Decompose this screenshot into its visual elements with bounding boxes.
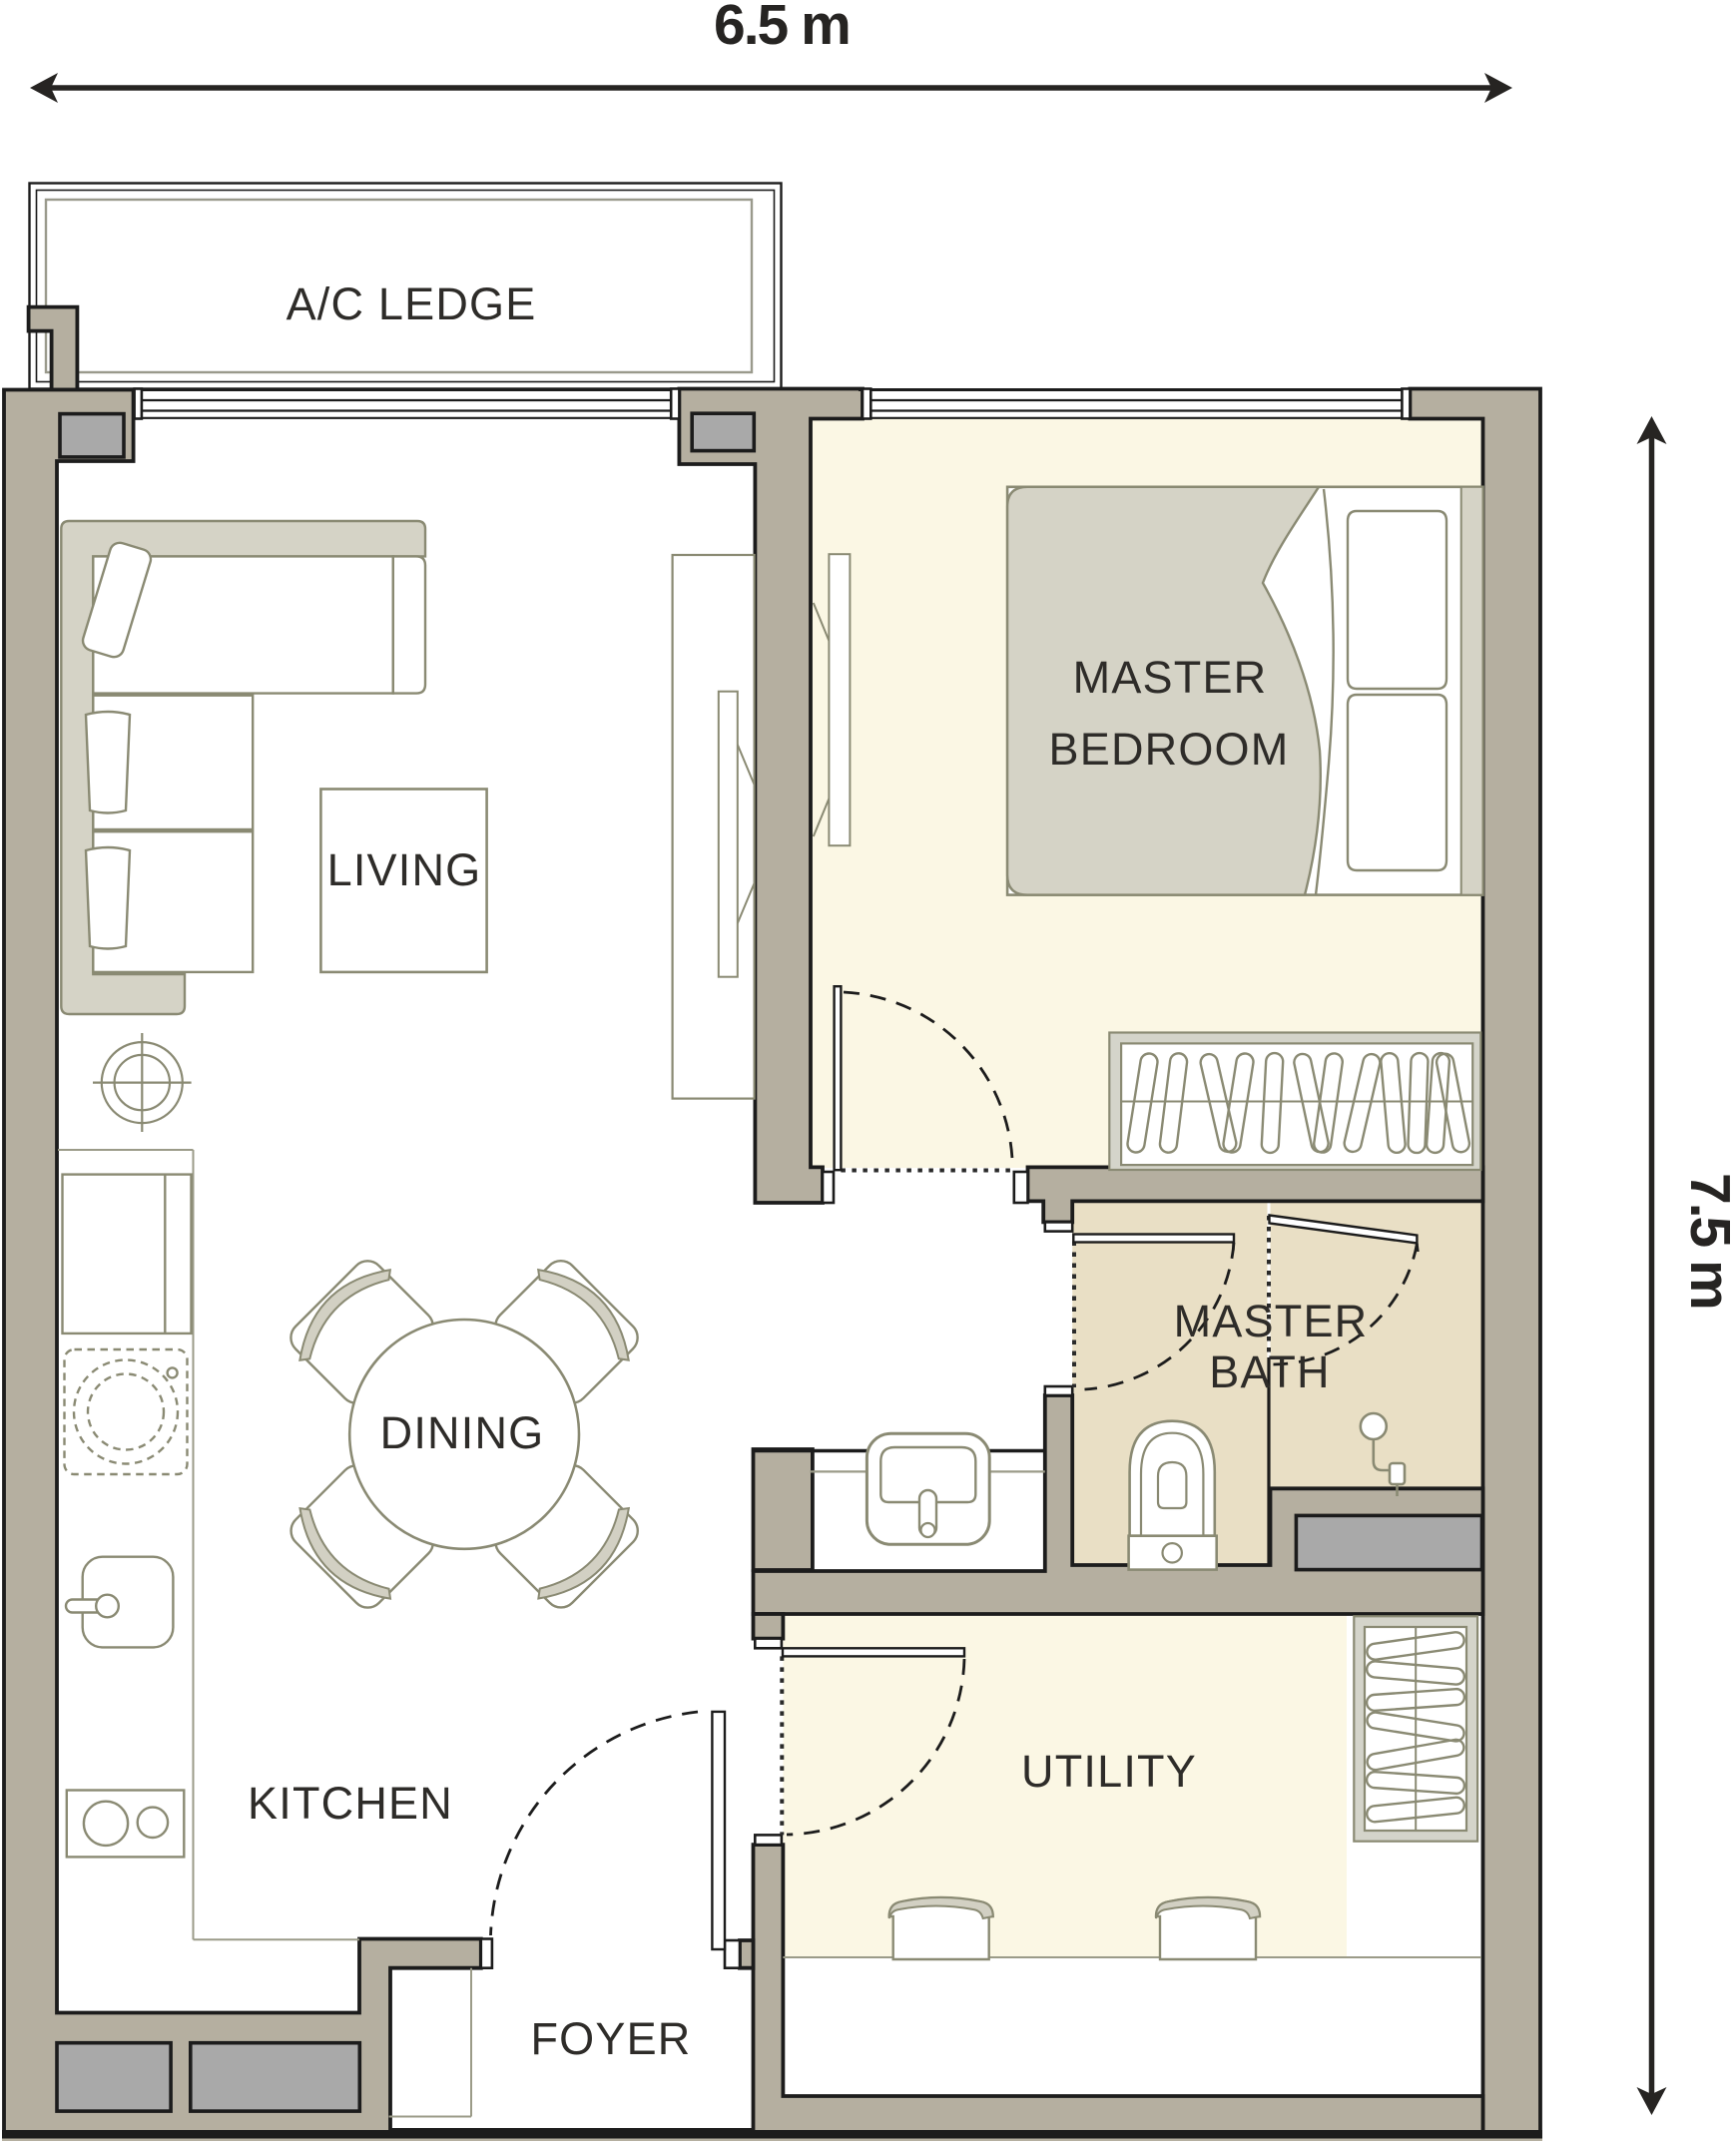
svg-text:MASTER: MASTER <box>1073 652 1268 703</box>
svg-text:FOYER: FOYER <box>530 2013 691 2064</box>
svg-text:UTILITY: UTILITY <box>1021 1746 1197 1797</box>
svg-text:MASTER: MASTER <box>1174 1296 1369 1346</box>
svg-text:LIVING: LIVING <box>327 844 482 895</box>
svg-text:KITCHEN: KITCHEN <box>248 1778 453 1829</box>
svg-text:DINING: DINING <box>380 1407 545 1458</box>
svg-text:7.5 m: 7.5 m <box>1678 1173 1736 1309</box>
svg-text:BATH: BATH <box>1209 1346 1330 1397</box>
svg-text:BEDROOM: BEDROOM <box>1049 724 1290 775</box>
svg-text:A/C LEDGE: A/C LEDGE <box>287 278 537 329</box>
svg-text:6.5 m: 6.5 m <box>714 0 850 57</box>
